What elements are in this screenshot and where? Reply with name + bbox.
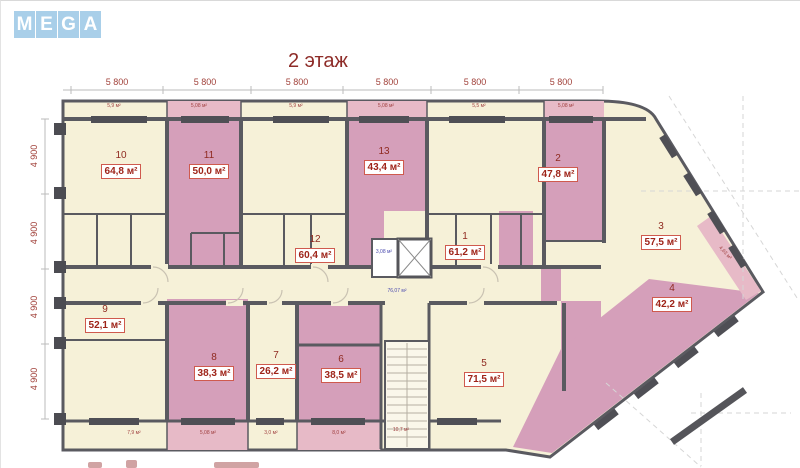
balcony-area-label: 10,7 м²: [381, 427, 421, 433]
floor-title: 2 этаж: [288, 50, 348, 73]
floorplan-page: M E G A 2 этаж 5 800 5 800 5 800 5 800 5…: [0, 0, 800, 468]
room-label-12: 12 60,4 м²: [280, 234, 350, 263]
room-number: 8: [179, 352, 249, 363]
room-number: 13: [349, 146, 419, 157]
balcony-area-label: 7,9 м²: [114, 430, 154, 436]
room-number: 2: [523, 153, 593, 164]
room-area: 50,0 м²: [189, 164, 230, 179]
logo-letter-m: M: [14, 11, 35, 38]
balcony-area-label: 5,9 м²: [276, 103, 316, 109]
dim-left-4: 4 900: [29, 357, 39, 401]
room-label-1: 1 61,2 м²: [430, 231, 500, 260]
mega-logo: M E G A: [14, 11, 101, 38]
room-label-10: 10 64,8 м²: [86, 150, 156, 179]
room-label-13: 13 43,4 м²: [349, 146, 419, 175]
room-label-3: 3 57,5 м²: [626, 221, 696, 250]
room-number: 12: [280, 234, 350, 245]
room-label-11: 11 50,0 м²: [174, 150, 244, 179]
elevator-icon: [372, 239, 431, 277]
logo-letter-a: A: [80, 11, 101, 38]
dim-top-1: 5 800: [95, 77, 139, 87]
balcony-area-label: 3,0 м²: [251, 430, 291, 436]
balcony-area-label: 5,08 м²: [366, 103, 406, 109]
room-area: 57,5 м²: [641, 235, 682, 250]
room-number: 9: [70, 304, 140, 315]
room-label-5: 5 71,5 м²: [449, 358, 519, 387]
room-area: 71,5 м²: [464, 372, 505, 387]
balcony-area-label: 5,08 м²: [179, 103, 219, 109]
balcony-area-label: 5,9 м²: [94, 103, 134, 109]
room-label-9: 9 52,1 м²: [70, 304, 140, 333]
room-number: 4: [637, 283, 707, 294]
room-area: 61,2 м²: [445, 245, 486, 260]
corridor-area-label: 76,07 м²: [377, 288, 417, 294]
balcony-area-label: 5,5 м²: [459, 103, 499, 109]
balcony-area-label: 5,08 м²: [546, 103, 586, 109]
room-area: 64,8 м²: [101, 164, 142, 179]
dim-left-3: 4 900: [29, 285, 39, 329]
room-label-6: 6 38,5 м²: [306, 354, 376, 383]
room-area: 47,8 м²: [538, 167, 579, 182]
logo-letter-g: G: [58, 11, 79, 38]
room-area: 42,2 м²: [652, 297, 693, 312]
room-area: 52,1 м²: [85, 318, 126, 333]
room-number: 6: [306, 354, 376, 365]
dim-left-1: 4 900: [29, 134, 39, 178]
cropped-text-fragment: [214, 462, 259, 468]
logo-letter-e: E: [36, 11, 57, 38]
room-number: 7: [241, 350, 311, 361]
dim-top-3: 5 800: [275, 77, 319, 87]
room-area: 38,3 м²: [194, 366, 235, 381]
room-number: 10: [86, 150, 156, 161]
room-label-8: 8 38,3 м²: [179, 352, 249, 381]
dim-top-4: 5 800: [365, 77, 409, 87]
room-area: 60,4 м²: [295, 248, 336, 263]
balcony-area-label: 8,0 м²: [319, 430, 359, 436]
cropped-text-fragment: [88, 462, 102, 468]
room-area: 26,2 м²: [256, 364, 297, 379]
room-area: 43,4 м²: [364, 160, 405, 175]
room-number: 11: [174, 150, 244, 161]
room-label-2: 2 47,8 м²: [523, 153, 593, 182]
dim-top-2: 5 800: [183, 77, 227, 87]
dim-top-5: 5 800: [453, 77, 497, 87]
room-area: 38,5 м²: [321, 368, 362, 383]
balcony-area-label: 5,08 м²: [188, 430, 228, 436]
dim-left-2: 4 900: [29, 211, 39, 255]
room-label-4: 4 42,2 м²: [637, 283, 707, 312]
elevator-lobby-area-label: 3,08 м²: [364, 249, 404, 255]
room-label-7: 7 26,2 м²: [241, 350, 311, 379]
room-number: 1: [430, 231, 500, 242]
room-number: 3: [626, 221, 696, 232]
dim-top-6: 5 800: [539, 77, 583, 87]
room-number: 5: [449, 358, 519, 369]
